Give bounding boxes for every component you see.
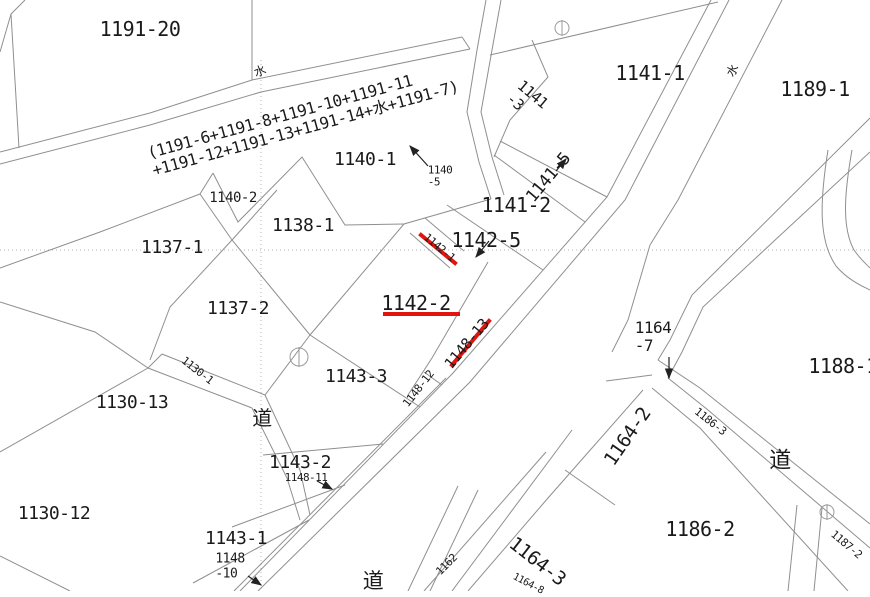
arrow-to-1142-5 bbox=[476, 241, 489, 257]
grid-dotted-lines bbox=[0, 60, 870, 591]
arrow-to-1141-5 bbox=[556, 159, 566, 171]
leader-arrows bbox=[248, 146, 669, 585]
parcel-boundaries-layer bbox=[0, 0, 870, 591]
parcel-lines bbox=[0, 0, 870, 591]
highlight-1148-13-underline bbox=[452, 321, 489, 365]
benchmark-marker-icon bbox=[290, 347, 308, 367]
benchmark-marker-icon bbox=[555, 20, 569, 36]
cadastral-map-canvas: 1191-20(1191-6+1191-8+1191-10+1191-11 +1… bbox=[0, 0, 870, 591]
highlight-marks bbox=[385, 235, 489, 365]
arrow-to-1140-5 bbox=[410, 146, 428, 166]
arrow-to-1148-11 bbox=[317, 481, 332, 489]
